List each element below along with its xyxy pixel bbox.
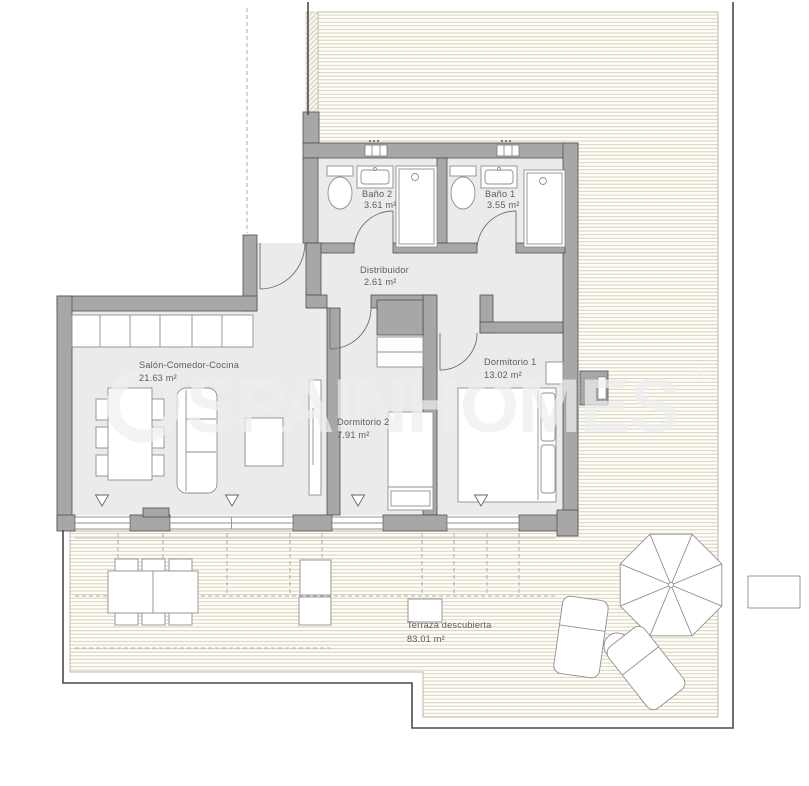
- floor-plan: SPAINHOMES ® SPAINHOMES ® Baño 2 3.61 m²…: [0, 0, 809, 786]
- watermark: SPAINHOMES ® SPAINHOMES ®: [113, 364, 711, 449]
- window-dorm1: [447, 517, 519, 529]
- label-salon-name: Salón-Comedor-Cocina: [139, 360, 240, 370]
- parasol-umbrella: [620, 534, 722, 636]
- label-dorm2-area: 7.91 m²: [337, 430, 370, 440]
- kitchen-counter: [72, 315, 253, 347]
- label-bano2-area: 3.61 m²: [364, 200, 397, 210]
- label-bano1-name: Baño 1: [485, 189, 515, 199]
- sliding-door-salon: [170, 517, 293, 529]
- toilet: [327, 166, 353, 209]
- label-dorm2-name: Dormitorio 2: [337, 417, 389, 427]
- svg-text:®: ®: [694, 365, 711, 382]
- shower: [524, 170, 565, 247]
- window-salon-left: [75, 517, 130, 529]
- label-salon-area: 21.63 m²: [139, 373, 177, 383]
- outdoor-dining-set: [108, 559, 198, 625]
- shower: [396, 166, 437, 247]
- sink: [357, 166, 393, 188]
- label-terraza-name: Terraza descubierta: [407, 620, 492, 630]
- label-bano2-name: Baño 2: [362, 189, 392, 199]
- sink: [481, 166, 517, 188]
- svg-text:SPAINHOMES: SPAINHOMES: [186, 364, 686, 449]
- neighbor-structure: [748, 576, 800, 608]
- label-distribuidor-area: 2.61 m²: [364, 277, 397, 287]
- toilet: [450, 166, 476, 209]
- label-bano1-area: 3.55 m²: [487, 200, 520, 210]
- label-terraza-area: 83.01 m²: [407, 634, 445, 644]
- window-dorm2: [332, 517, 383, 529]
- label-dorm1-area: 13.02 m²: [484, 370, 522, 380]
- label-dorm1-name: Dormitorio 1: [484, 357, 536, 367]
- label-distribuidor-name: Distribuidor: [360, 265, 409, 275]
